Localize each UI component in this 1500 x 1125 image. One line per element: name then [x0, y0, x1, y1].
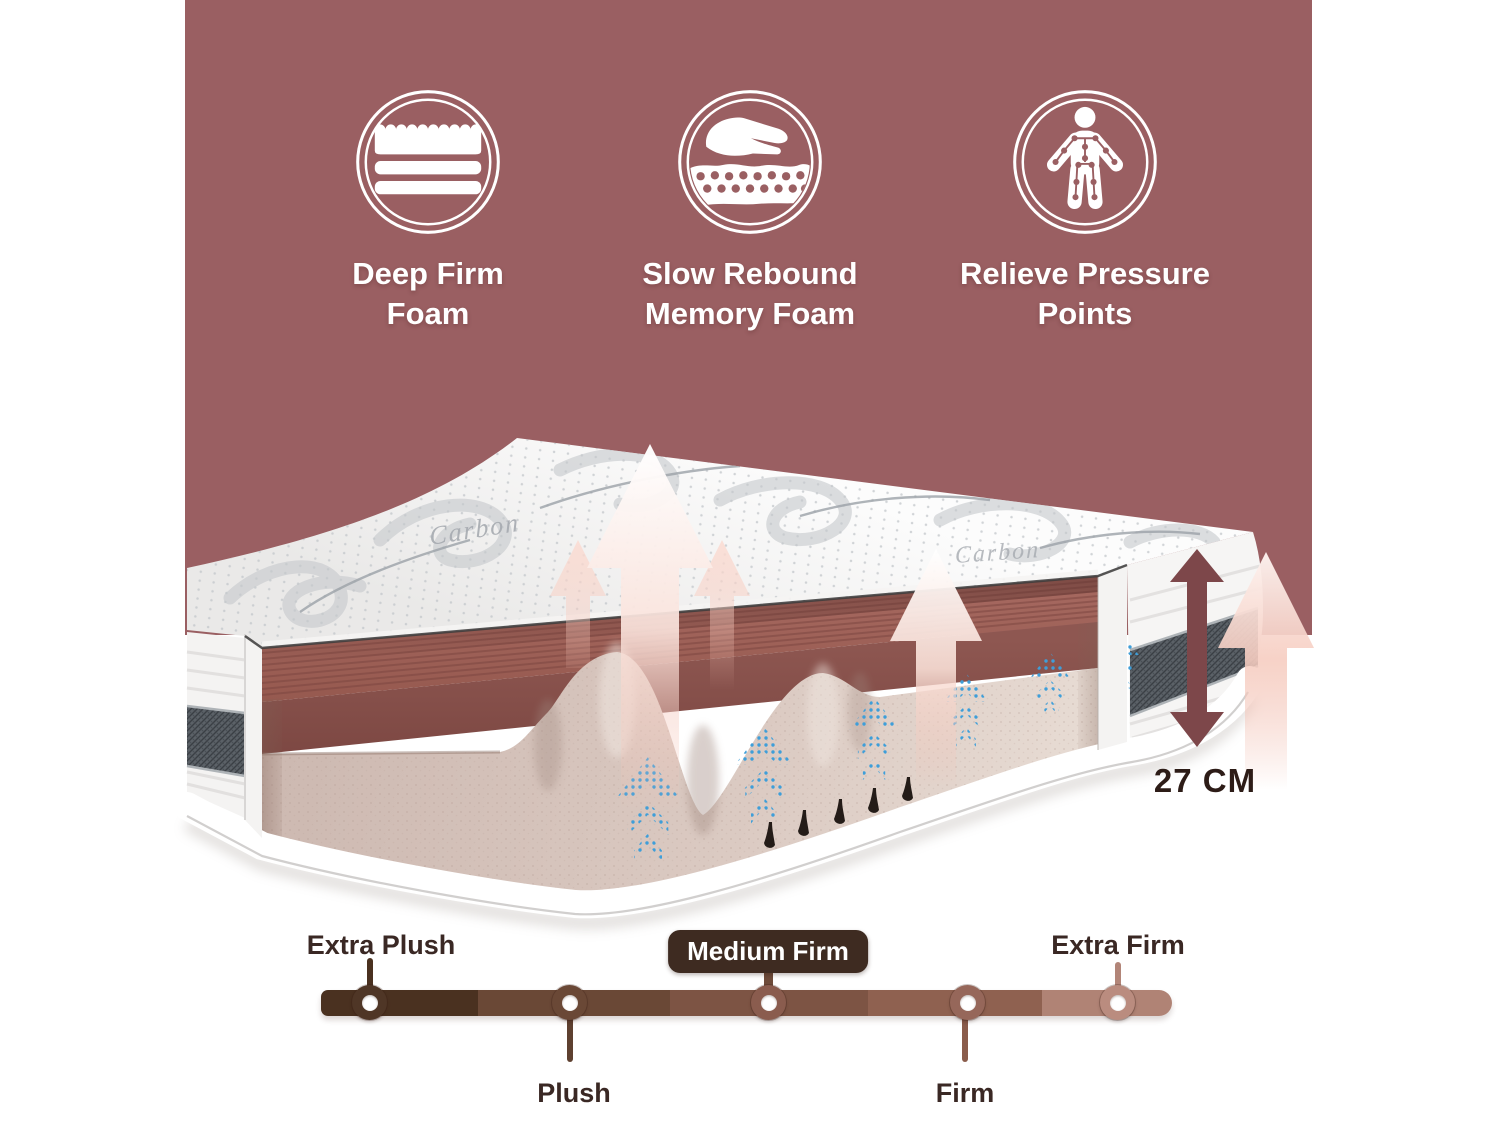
scale-label-extra-plush: Extra Plush [307, 930, 456, 961]
mattress-left-side [187, 632, 245, 818]
left-mesh-band [187, 706, 245, 776]
scale-stem-firm [962, 1014, 968, 1062]
mattress-height-label: 27 CM [1135, 762, 1275, 800]
node-hole [562, 995, 578, 1011]
node-hole [1110, 995, 1126, 1011]
scale-node-plush [552, 985, 587, 1020]
scale-stem-plush [567, 1014, 573, 1062]
scale-selected-badge: Medium Firm [668, 930, 868, 973]
scale-node-extra-firm [1100, 985, 1135, 1020]
node-hole [960, 995, 976, 1011]
node-hole [362, 995, 378, 1011]
product-infographic: Deep Firm Foam Slow Reboun [0, 0, 1500, 1125]
scale-label-firm: Firm [936, 1078, 995, 1109]
node-hole [761, 995, 777, 1011]
scale-label-extra-firm: Extra Firm [1051, 930, 1185, 961]
firmness-bar [321, 990, 1172, 1016]
bar-segment-extra-plush [321, 990, 478, 1016]
scale-node-medium-firm [751, 985, 786, 1020]
scale-label-plush: Plush [537, 1078, 611, 1109]
scale-node-firm [950, 985, 985, 1020]
scale-node-extra-plush [352, 985, 387, 1020]
